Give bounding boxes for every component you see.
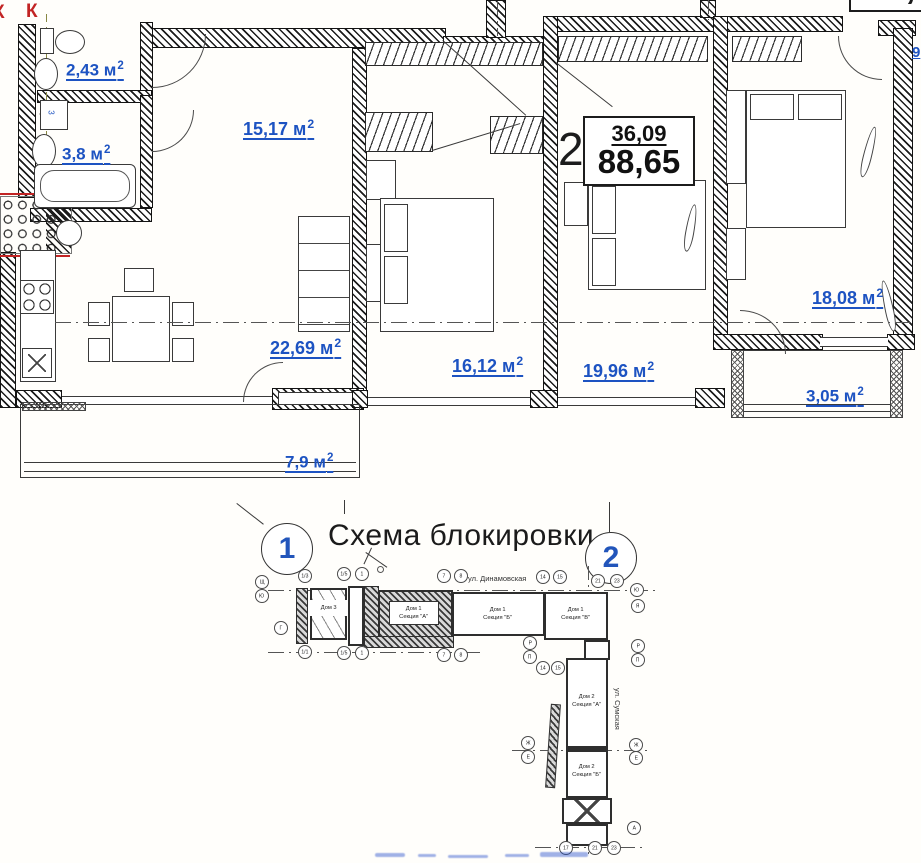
axis-marker: 15: [553, 570, 567, 584]
wardrobe-strip: [558, 36, 708, 62]
tick-mark: [344, 500, 345, 514]
clipped-area-value: 82,69: [863, 0, 921, 8]
total-area-value: 88,65: [598, 145, 681, 180]
building-wing-connector: [584, 640, 610, 660]
wardrobe: [490, 116, 543, 154]
area-sup: 2: [334, 336, 341, 350]
building-dom1-a-step: [364, 636, 454, 648]
door-arc: [152, 110, 194, 152]
wall: [695, 388, 725, 408]
building-section: Секция "Б": [573, 772, 602, 779]
axis-marker: 8: [454, 648, 468, 662]
axis-marker: Г: [274, 621, 288, 635]
room-area-label: 2,43 м2: [66, 60, 124, 81]
building-dom2-a-label: Дом 2 Секция "А": [564, 690, 610, 712]
axis-marker: 1: [355, 646, 369, 660]
marker-leader-line: [609, 502, 610, 532]
nightstand: [564, 182, 588, 226]
axis-marker: Р: [631, 639, 645, 653]
scheme-title: Схема блокировки: [328, 519, 594, 553]
axis-marker: Р: [523, 636, 537, 650]
survey-mark-hook: [377, 566, 384, 573]
pillow: [384, 204, 408, 252]
building-section: Секция "А": [573, 702, 602, 709]
area-info-box: 36,09 88,65: [583, 116, 695, 186]
area-value: 3,8 м: [62, 145, 103, 164]
living-area-value: 36,09: [611, 122, 666, 145]
building-dom2-b-label: Дом 2 Секция "Б": [562, 760, 612, 782]
axis-marker: Щ: [255, 575, 269, 589]
dining-table: [112, 296, 170, 362]
building-section: Секция "Б": [484, 615, 513, 622]
building-crossed-block: [562, 798, 612, 824]
axis-marker: 1/3: [298, 569, 312, 583]
axis-marker: 1: [355, 567, 369, 581]
area-value: 18,08 м: [812, 288, 875, 308]
sofa: [298, 216, 350, 332]
wall: [0, 252, 16, 408]
axis-marker: Ж: [629, 738, 643, 752]
area-sup: 2: [307, 117, 314, 131]
window: [820, 337, 888, 347]
area-sup: 2: [516, 354, 523, 368]
apartment-number: 2: [558, 122, 584, 176]
room-area-label: 7,9 м2: [285, 452, 333, 473]
axis-marker: 1/5: [337, 646, 351, 660]
area-sup: 2: [647, 359, 654, 373]
area-sup: 2: [104, 144, 110, 156]
section-marker-2-number: 2: [603, 541, 620, 575]
bathtub-inner: [40, 170, 130, 202]
chair: [172, 338, 194, 362]
area-sup: 2: [857, 386, 863, 398]
axis-marker: 23: [610, 574, 624, 588]
street-label-top: ул. Динамовская: [468, 574, 526, 583]
wc-sink: [34, 58, 58, 90]
area-value: 19,96 м: [583, 361, 646, 381]
wall: [543, 16, 558, 392]
axis-marker: Ю: [255, 589, 269, 603]
marker-leader-line: [236, 503, 264, 525]
centerline: [708, 0, 709, 20]
toilet-cistern: [40, 28, 54, 54]
building-dom1-a-label: Дом 1 Секция "А": [389, 601, 439, 625]
area-value: 15,17 м: [243, 119, 306, 139]
balcony-hatch: [890, 350, 903, 418]
pillow: [592, 238, 616, 286]
room-area-label: 18,08 м2: [812, 286, 883, 309]
building-dom1-b-label: Дом 1 Секция "Б": [468, 602, 528, 626]
wall: [713, 16, 843, 32]
area-sup: 2: [327, 452, 333, 464]
building-dom3-label: Дом 3: [308, 600, 350, 616]
door-arc: [740, 310, 786, 354]
room-area-label: 19,96 м2: [583, 359, 654, 382]
axis-marker: 1/1: [298, 645, 312, 659]
axis-marker: 8: [454, 569, 468, 583]
riser-k-label: К: [0, 2, 5, 24]
clipped-side-label: 9: [912, 44, 920, 61]
bath-sink: [32, 134, 56, 168]
kitchen-sink-cross: [28, 354, 46, 372]
building-section: Секция "А": [400, 614, 429, 621]
street-label-right: ул. Сумская: [613, 688, 622, 730]
axis-marker: 14: [536, 661, 550, 675]
nightstand: [726, 90, 746, 184]
wardrobe-strip: [365, 42, 543, 66]
scanned-floor-plan: К К 3: [0, 0, 921, 863]
pillow: [384, 256, 408, 304]
toilet-bowl: [55, 30, 85, 54]
window: [558, 397, 695, 406]
pillow: [592, 186, 616, 234]
dresser: [726, 228, 746, 280]
balcony-hatch: [731, 350, 744, 418]
area-sup: 2: [876, 286, 883, 300]
building-name: Дом 2: [579, 694, 595, 701]
wall: [553, 16, 715, 32]
wall: [893, 28, 913, 346]
area-value: 2,43 м: [66, 61, 116, 80]
area-value: 22,69 м: [270, 338, 333, 358]
nightstand: [366, 160, 396, 200]
room-area-label: 15,17 м2: [243, 117, 314, 140]
area-value: 7,9 м: [285, 453, 326, 472]
building-block: [348, 586, 364, 646]
door-arc: [243, 362, 283, 402]
axis-marker: 1/5: [337, 567, 351, 581]
washing-machine-label: 3: [47, 110, 56, 114]
building-sliver: [296, 588, 308, 644]
room-area-label: 16,12 м2: [452, 354, 523, 377]
axis-marker: 7: [437, 648, 451, 662]
axis-marker: Ж: [521, 736, 535, 750]
building-name: Дом 2: [579, 764, 595, 771]
area-sup: 2: [117, 60, 123, 72]
room-area-label: 22,69 м2: [270, 336, 341, 359]
wardrobe-strip: [732, 36, 802, 62]
area-value: 3,05 м: [806, 387, 856, 406]
wall: [352, 48, 367, 392]
centerline: [497, 2, 498, 36]
stove: [20, 280, 54, 314]
axis-marker: 14: [536, 570, 550, 584]
wall: [486, 0, 506, 38]
riser-k-label: К: [26, 1, 38, 23]
axis-marker: Ю: [630, 583, 644, 597]
building-dom1-v-label: Дом 1 Секция "В": [546, 602, 606, 626]
pillow: [750, 94, 794, 120]
centerline: [55, 322, 915, 323]
building-name: Дом 1: [406, 606, 422, 613]
axis-marker: 23: [607, 841, 621, 855]
room-area-label: 3,05 м2: [806, 386, 864, 407]
axis-marker: Е: [521, 750, 535, 764]
axis-marker: 21: [588, 841, 602, 855]
building-name: Дом 3: [321, 605, 337, 612]
clipped-area-box: 82,69: [849, 0, 921, 12]
building-sliver: [545, 704, 561, 788]
wall: [887, 334, 915, 350]
building-section: Секция "В": [562, 615, 591, 622]
axis-marker: 7: [437, 569, 451, 583]
chair: [88, 338, 110, 362]
building-name: Дом 1: [568, 607, 584, 614]
chair: [124, 268, 154, 292]
door-leaf: [858, 126, 879, 179]
door-arc: [838, 36, 882, 80]
wall: [530, 390, 558, 408]
boiler: [56, 220, 82, 246]
balcony-hatch: [22, 402, 86, 411]
axis-marker: Я: [631, 599, 645, 613]
wardrobe: [365, 112, 433, 152]
building-bottom-block: [566, 824, 608, 846]
area-value: 16,12 м: [452, 356, 515, 376]
axis-marker: Е: [629, 751, 643, 765]
door-line: [555, 62, 612, 107]
axis-marker: 15: [551, 661, 565, 675]
room-area-label: 3,8 м2: [62, 144, 110, 165]
pillow: [798, 94, 842, 120]
axis-marker: П: [523, 650, 537, 664]
axis-marker: А: [627, 821, 641, 835]
building-name: Дом 1: [490, 607, 506, 614]
axis-marker: 21: [591, 574, 605, 588]
axis-marker: П: [631, 653, 645, 667]
section-marker-1-number: 1: [279, 532, 296, 566]
door-arc: [152, 34, 206, 88]
window: [368, 397, 530, 406]
section-marker-1: 1: [261, 523, 313, 575]
washing-machine: [40, 100, 68, 130]
